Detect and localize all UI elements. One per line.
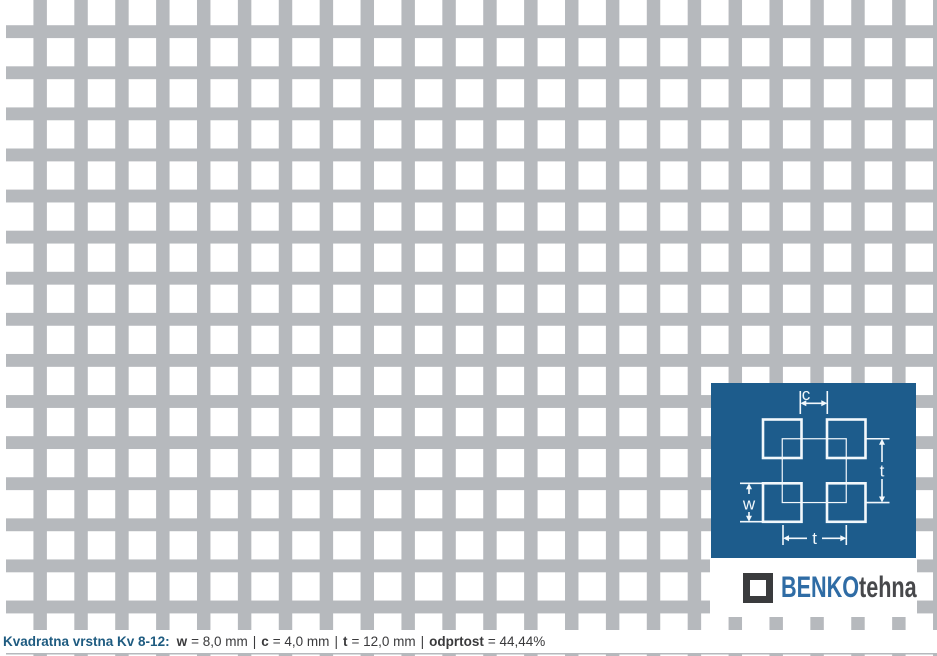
caption-bar: Kvadratna vrstna Kv 8-12: w = 8,0 mm | c… [0,630,937,653]
spec-value-odprtost: = 44,44% [488,634,545,649]
dimension-label-w: w [742,495,756,514]
dimension-label-c: c [802,385,811,404]
pattern-title: Kvadratna vrstna Kv 8-12: [3,634,170,649]
dimension-label-t-vertical: t [880,462,885,481]
spec-key-c: c [261,634,269,649]
spec-value-c: = 4,0 mm [273,634,330,649]
brand-logo: BENKOtehna [743,573,937,603]
dimension-t-vertical [866,439,890,503]
perforation-dimension-diagram: c t w [711,383,916,558]
spec-key-w: w [177,634,188,649]
spec-value-t: = 12,0 mm [351,634,415,649]
square-outline-icon [743,573,773,603]
dimension-label-t-horizontal: t [812,529,817,548]
brand-wordmark: BENKOtehna [781,573,917,603]
spec-separator: | [421,634,425,649]
spec-separator: | [334,634,338,649]
spec-separator: | [253,634,257,649]
pitch-square [782,439,846,503]
dimension-panel: c t w [711,383,916,558]
brand-name-primary: BENKO [781,571,859,604]
spec-key-t: t [343,634,348,649]
hole-squares [763,420,866,522]
brand-name-secondary: tehna [859,571,917,604]
spec-value-w: = 8,0 mm [191,634,248,649]
spec-key-odprtost: odprtost [429,634,484,649]
